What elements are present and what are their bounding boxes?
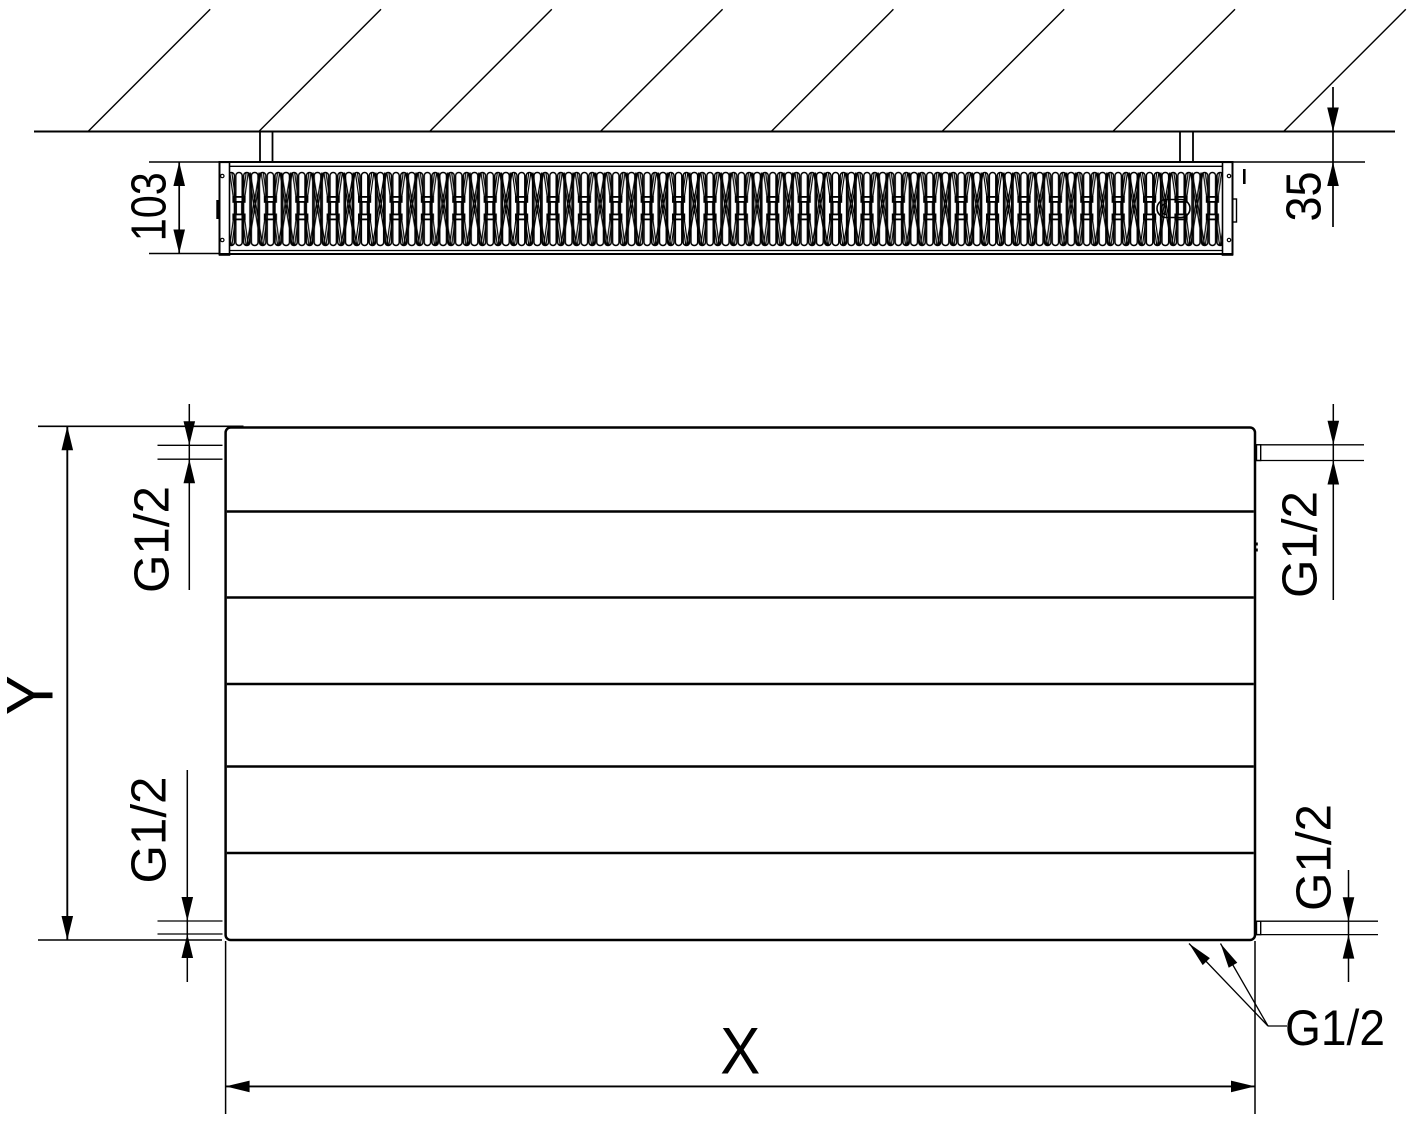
svg-text:G1/2: G1/2 [1287, 804, 1342, 911]
svg-text:103: 103 [122, 172, 177, 241]
svg-text:Y: Y [0, 675, 67, 715]
svg-text:G1/2: G1/2 [1273, 491, 1328, 598]
svg-text:G1/2: G1/2 [1285, 1000, 1385, 1056]
svg-text:X: X [720, 1014, 760, 1088]
svg-text:G1/2: G1/2 [122, 777, 177, 884]
svg-text:35: 35 [1277, 172, 1332, 222]
svg-text:G1/2: G1/2 [125, 486, 180, 593]
